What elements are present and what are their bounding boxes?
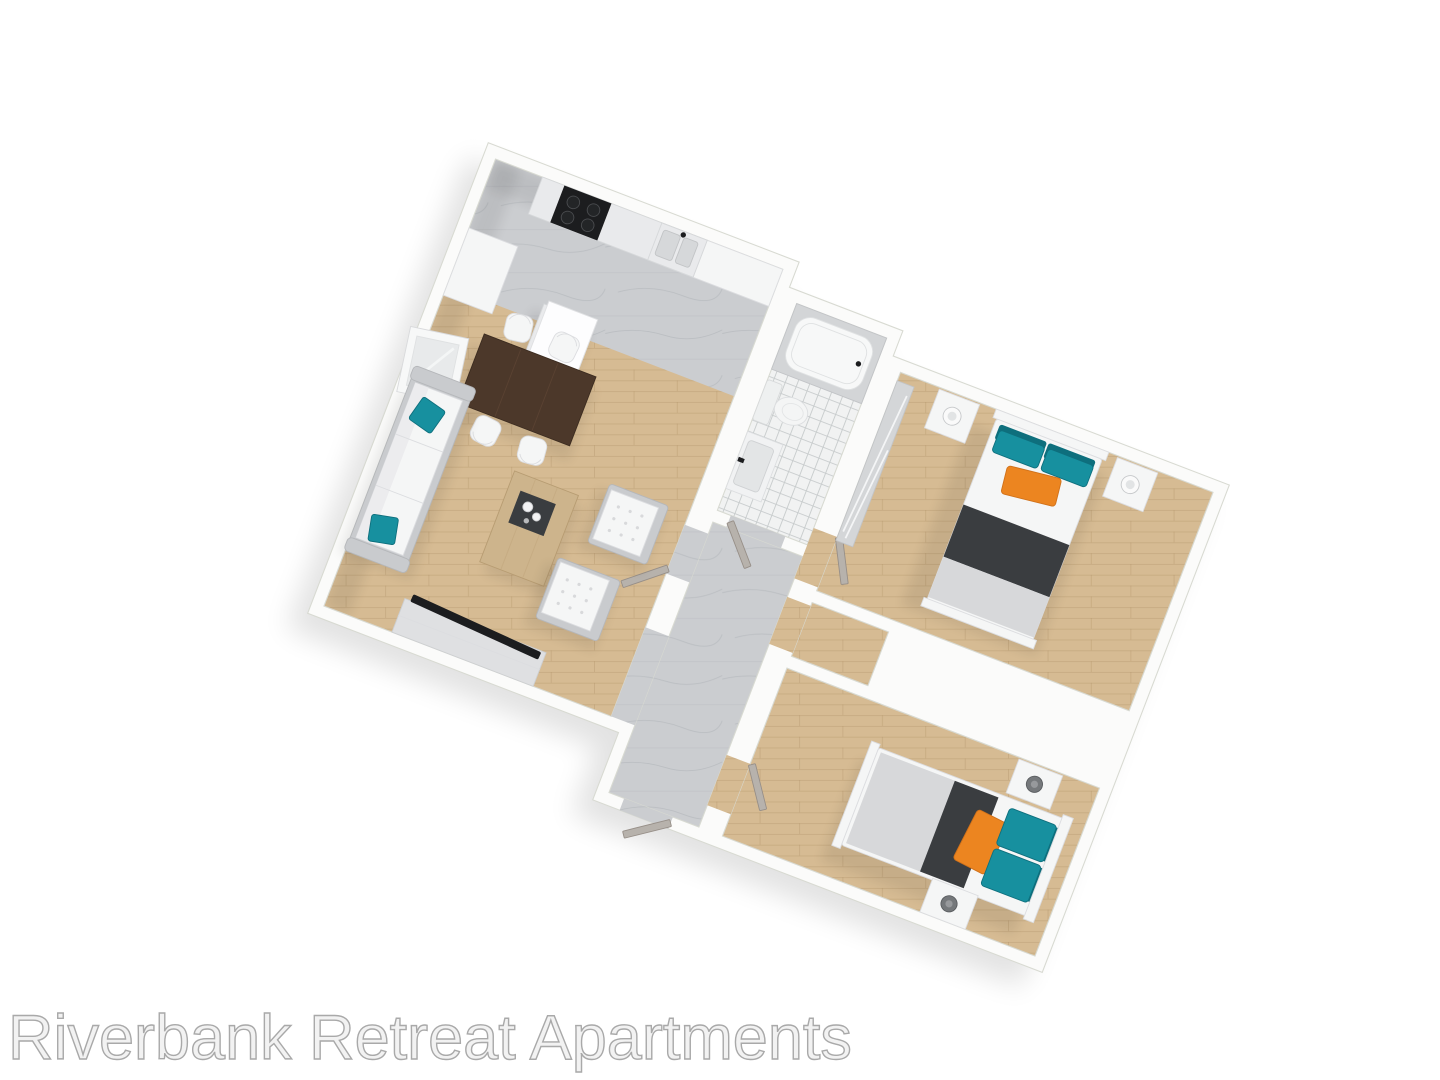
watermark: Riverbank Retreat Apartments <box>8 1007 852 1070</box>
teal-throw-pillow <box>368 514 399 545</box>
apartment-plan <box>260 138 1249 996</box>
floorplan-svg <box>0 0 1440 1080</box>
floorplan-render: Riverbank Retreat Apartments <box>0 0 1440 1080</box>
watermark-text: Riverbank Retreat Apartments <box>8 1003 852 1073</box>
